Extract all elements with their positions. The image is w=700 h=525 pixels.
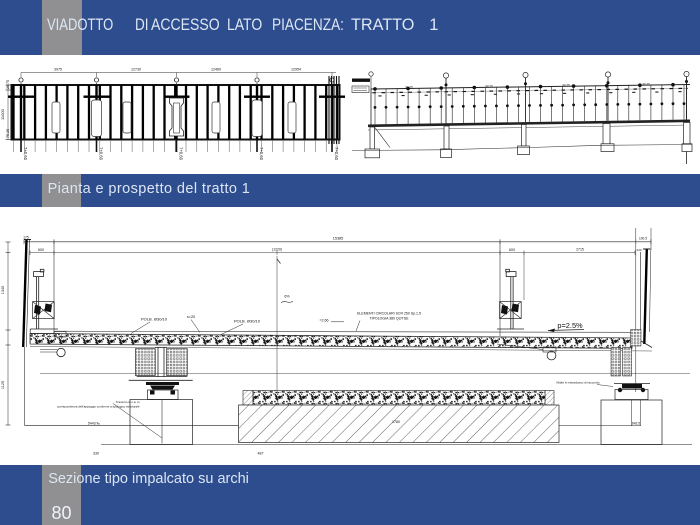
svg-text:11000: 11000 [0,108,5,120]
svg-text:330: 330 [93,452,99,456]
svg-text:=2.66: =2.66 [319,318,328,322]
svg-text:POLB. Ø30/10: POLB. Ø30/10 [141,317,168,322]
svg-text:1125: 1125 [1,381,5,389]
svg-text:3975: 3975 [54,68,62,72]
svg-text:33.75: 33.75 [405,85,413,89]
svg-text:POLB. Ø30/10: POLB. Ø30/10 [234,319,261,324]
svg-text:643.5: 643.5 [632,422,640,426]
svg-text:12460: 12460 [211,68,221,72]
svg-text:(1220): (1220) [272,247,282,251]
svg-text:7+0,60: 7+0,60 [179,147,184,161]
svg-text:p=2.5%: p=2.5% [557,321,583,330]
svg-text:33.75: 33.75 [485,84,493,88]
svg-text:600: 600 [38,248,44,252]
svg-text:7+0,60: 7+0,60 [259,147,264,161]
svg-text:1340: 1340 [1,286,5,294]
svg-text:6%: 6% [284,295,290,299]
svg-text:ELEMENTI CIRCOLARI SCR 250 Sp.: ELEMENTI CIRCOLARI SCR 250 Sp.1,5 [357,312,421,316]
svg-text:240: 240 [636,248,641,252]
svg-text:TIPOLOGIA 380 Q2/TSE: TIPOLOGIA 380 Q2/TSE [370,316,410,320]
svg-text:487: 487 [258,452,264,456]
svg-text:7+0,60: 7+0,60 [334,147,339,161]
svg-text:175: 175 [23,236,29,240]
svg-text:33.75: 33.75 [642,82,650,86]
svg-text:75 25: 75 25 [6,129,10,138]
svg-text:Malte in estradosso di raccord: Malte in estradosso di raccordo [557,381,600,385]
svg-text:600: 600 [509,248,515,252]
svg-text:5443 ‰: 5443 ‰ [88,421,100,425]
svg-text:7+0,60: 7+0,60 [23,147,28,161]
svg-text:33.75: 33.75 [562,83,570,87]
svg-text:15385: 15385 [333,236,344,240]
svg-text:1780: 1780 [392,420,400,424]
svg-text:100.5: 100.5 [639,237,647,241]
svg-text:12730: 12730 [131,68,141,72]
svg-text:25 75: 25 75 [6,80,10,89]
svg-text:2715: 2715 [576,247,584,251]
svg-text:s=20: s=20 [187,315,195,319]
svg-text:corrispondenza dell’appoggio c: corrispondenza dell’appoggio conforme a … [57,405,140,409]
svg-text:7+0,60: 7+0,60 [99,147,104,161]
svg-text:Traverso in c.a. in: Traverso in c.a. in [116,400,140,404]
svg-text:12954: 12954 [291,68,301,72]
